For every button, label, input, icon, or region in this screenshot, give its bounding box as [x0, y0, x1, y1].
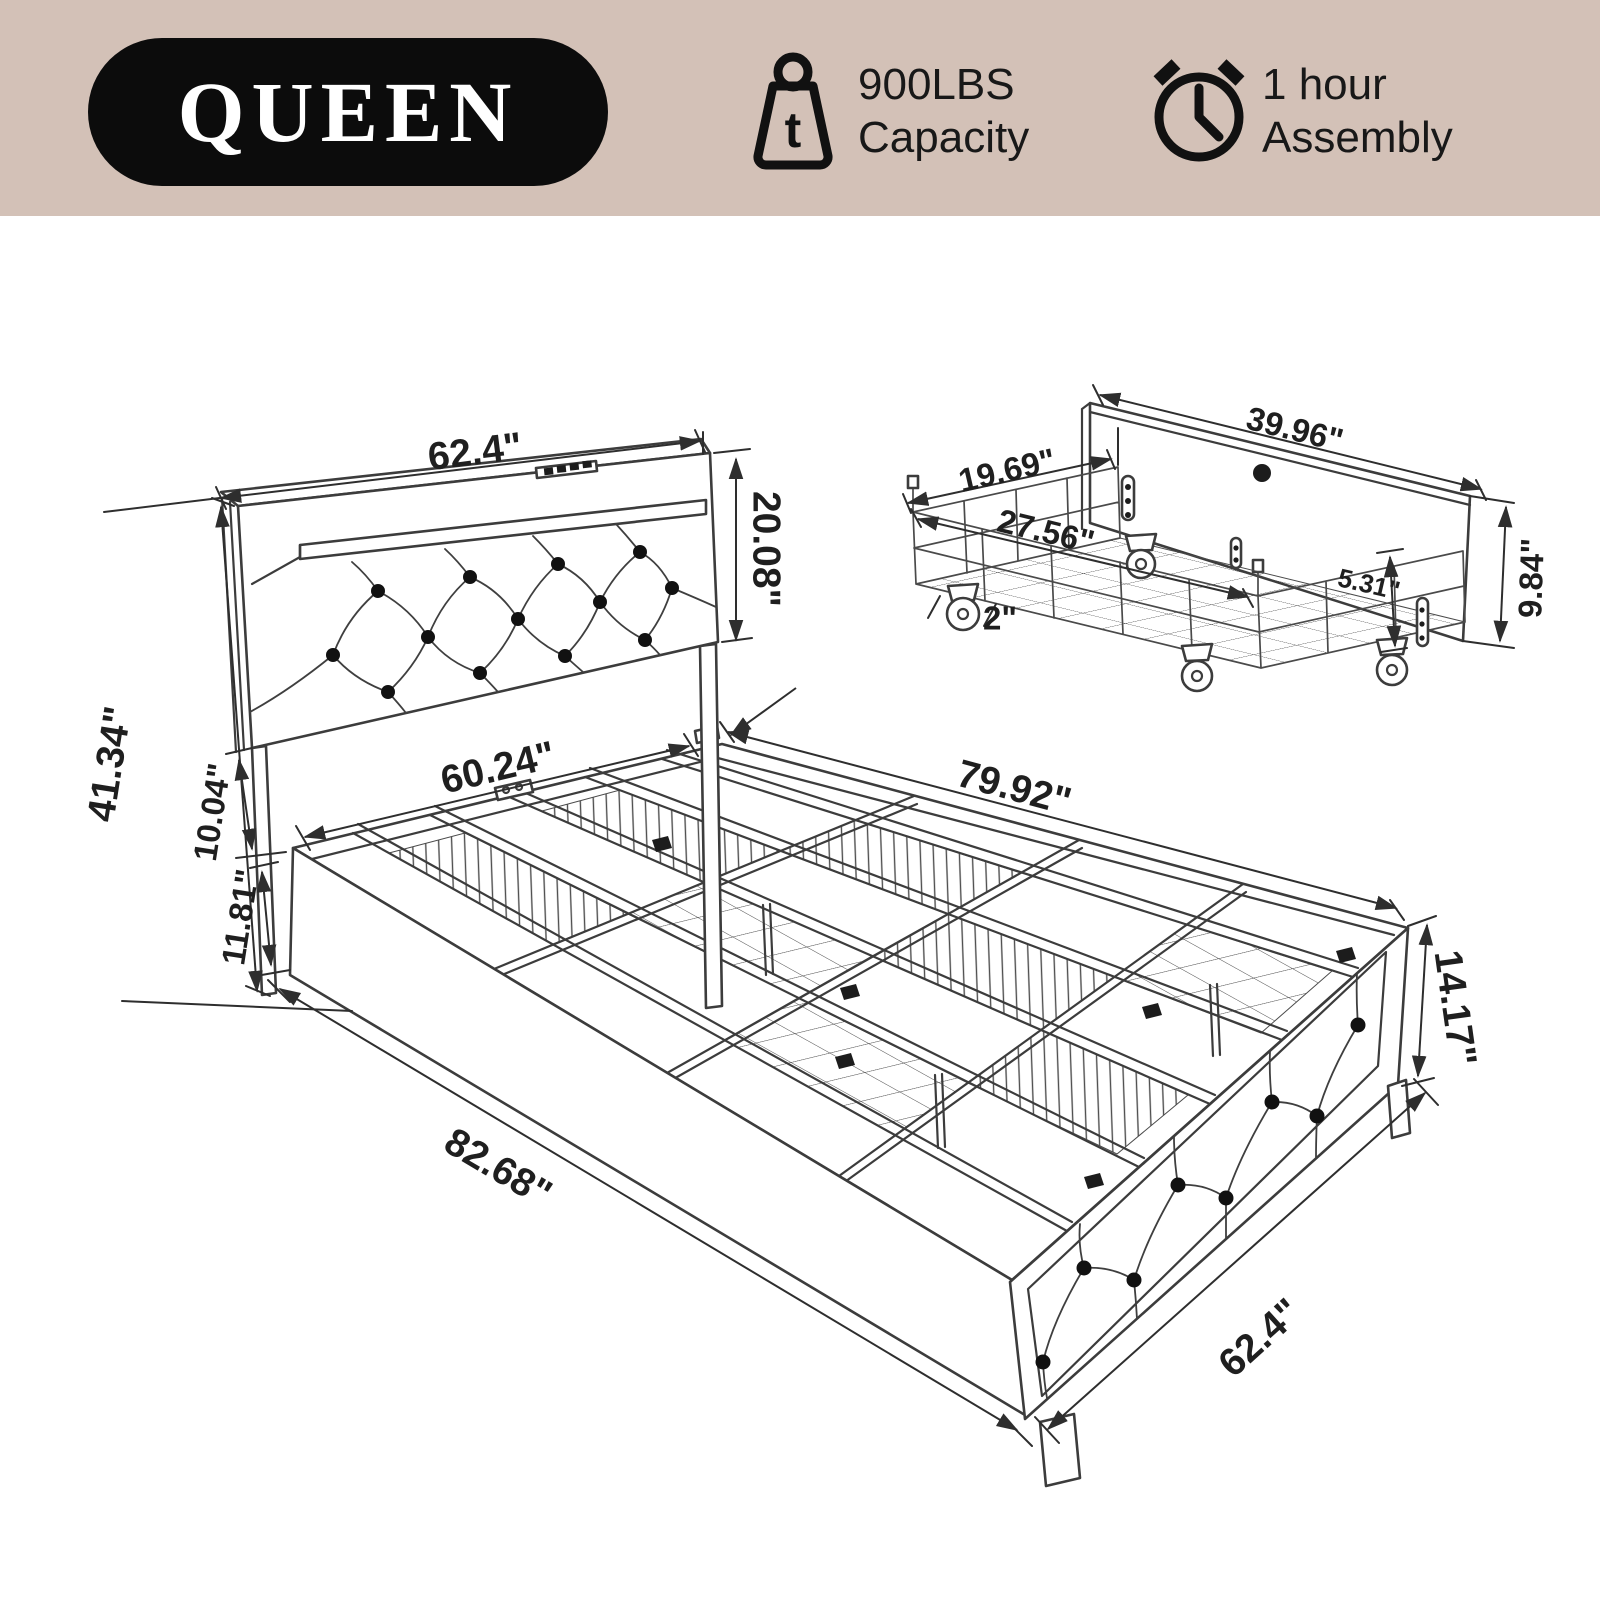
foot-leg-left	[1040, 1414, 1080, 1486]
headboard-leg-left	[252, 746, 276, 995]
dim-headboard-total-height-label: 41.34"	[80, 703, 141, 824]
dim-drawer-depth-label: 19.69"	[955, 441, 1059, 499]
dim-total-length-label: 82.68"	[437, 1120, 559, 1216]
dim-drawer-depth: 19.69"	[903, 428, 1118, 513]
dim-footboard-height-label: 14.17"	[1426, 948, 1485, 1069]
dim-headboard-panel-height: 20.08"	[714, 449, 788, 642]
dim-drawer-front-height: 9.84"	[1463, 496, 1551, 648]
dim-footboard-height: 14.17"	[1402, 916, 1484, 1086]
dim-headboard-panel-height-label: 20.08"	[745, 491, 788, 607]
storage-drawer-inset	[908, 403, 1470, 691]
dim-side-rail-height-label: 11.81"	[214, 866, 266, 967]
caster-wheel	[1377, 638, 1407, 685]
caster-wheel	[1182, 644, 1212, 691]
dim-side-rail-height: 11.81"	[214, 862, 290, 976]
caster-wheel	[947, 584, 979, 630]
drawer-knob	[1253, 464, 1271, 482]
dim-frame-width-label: 62.4"	[1211, 1290, 1310, 1385]
headboard-panel	[238, 453, 718, 748]
bed-dimension-diagram: 62.4" 20.08" 41.34" 10.04" 11.81" 60.24"	[0, 0, 1600, 1600]
dim-headboard-gap-label: 10.04"	[186, 761, 238, 864]
dim-drawer-front-height-label: 9.84"	[1511, 537, 1551, 618]
dim-caster-size-label: 2"	[983, 600, 1017, 637]
bed-frame	[290, 726, 1408, 1415]
